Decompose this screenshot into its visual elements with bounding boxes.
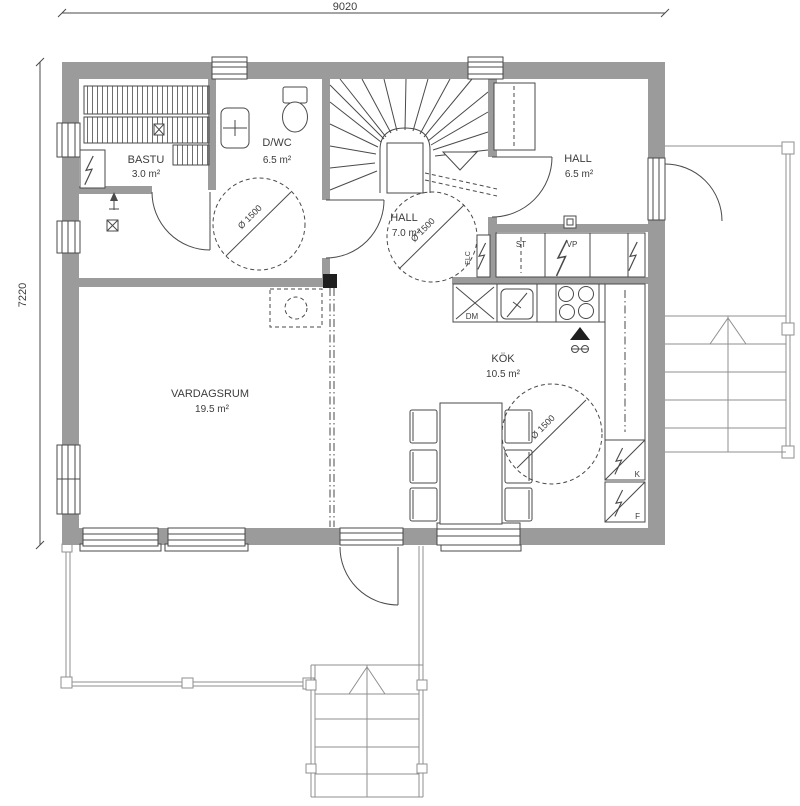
door-terrace bbox=[340, 528, 403, 605]
deck-post bbox=[182, 678, 193, 688]
ceiling-symbol bbox=[107, 220, 118, 231]
stair-arrow-down bbox=[443, 152, 477, 170]
room-label: D/WC bbox=[262, 137, 291, 149]
dining-table bbox=[440, 403, 502, 524]
wardrobe bbox=[494, 83, 535, 150]
dimension-left: 7220 bbox=[17, 58, 44, 549]
freezer-label: F bbox=[635, 512, 640, 521]
door-hall-entry bbox=[492, 157, 552, 217]
room-bastu: BASTU 3.0 m² bbox=[80, 86, 209, 188]
room-area: 10.5 m² bbox=[486, 369, 521, 380]
wall-junction-block bbox=[323, 274, 337, 288]
deck-post bbox=[417, 680, 427, 690]
door-bastu bbox=[152, 192, 210, 250]
staircase-main bbox=[330, 79, 497, 196]
deck-post bbox=[61, 677, 72, 688]
sauna-bench-lower bbox=[84, 117, 209, 143]
room-area: 19.5 m² bbox=[195, 404, 230, 415]
room-hall-entry: HALL 6.5 m² bbox=[494, 83, 594, 228]
dimension-height-label: 7220 bbox=[17, 283, 29, 307]
room-dwc: Ø 1500 D/WC 6.5 m² bbox=[213, 87, 308, 270]
stair-newel bbox=[387, 143, 423, 193]
room-label: HALL bbox=[564, 153, 592, 165]
window-bottom-livingroom-2 bbox=[165, 528, 248, 551]
sauna-heater bbox=[80, 150, 105, 188]
fridge: K bbox=[605, 440, 645, 480]
chair bbox=[410, 450, 437, 483]
drain-arrow bbox=[109, 192, 119, 210]
chair bbox=[505, 488, 532, 521]
entry-door-swing bbox=[665, 164, 722, 221]
chair bbox=[410, 488, 437, 521]
room-area: 6.5 m² bbox=[263, 155, 292, 166]
dimension-top: 9020 bbox=[58, 1, 669, 17]
window-top-right bbox=[468, 57, 503, 79]
room-label: KÖK bbox=[491, 353, 515, 365]
shower-area bbox=[107, 192, 119, 231]
window-top-left bbox=[212, 57, 247, 79]
deck-post bbox=[62, 544, 72, 552]
fireplace-outline bbox=[270, 289, 322, 327]
toilet bbox=[283, 87, 308, 132]
stairs-porch bbox=[665, 316, 786, 452]
window-left-livingroom bbox=[57, 445, 80, 514]
washbasin bbox=[221, 108, 249, 148]
stair-cut-line bbox=[425, 173, 497, 196]
ceiling-symbol bbox=[154, 124, 164, 135]
door-dwc bbox=[326, 200, 384, 258]
chair bbox=[410, 410, 437, 443]
deck-post bbox=[417, 764, 427, 773]
sauna-bench-side bbox=[173, 145, 209, 165]
door-entry bbox=[648, 158, 665, 220]
window-bottom-kitchen bbox=[437, 523, 521, 551]
cleaning-closet-label: ST bbox=[516, 240, 526, 249]
chair bbox=[505, 410, 532, 443]
fridge-label: K bbox=[635, 470, 641, 479]
window-left-bastu bbox=[57, 123, 80, 157]
room-label: HALL bbox=[390, 212, 418, 224]
turning-circle-label: Ø 1500 bbox=[529, 413, 557, 441]
room-vardagsrum: VARDAGSRUM 19.5 m² bbox=[171, 288, 334, 527]
floor-plan-page: 9020 7220 bbox=[0, 0, 800, 801]
porch-right bbox=[665, 142, 794, 458]
stairs-bottom bbox=[306, 546, 427, 797]
open-plan-divider bbox=[330, 288, 334, 527]
dishwasher-label: DM bbox=[466, 312, 479, 321]
closet-row: ST VP bbox=[496, 233, 645, 277]
room-label: VARDAGSRUM bbox=[171, 388, 249, 400]
porch-post bbox=[782, 323, 794, 335]
electrical-panel: ELC bbox=[465, 235, 490, 277]
window-bottom-livingroom-1 bbox=[80, 528, 161, 551]
vent-hood-symbol bbox=[570, 327, 590, 353]
deck-left bbox=[61, 544, 314, 689]
floor-plan-canvas: 9020 7220 bbox=[0, 0, 800, 801]
room-label: BASTU bbox=[128, 154, 165, 166]
sauna-bench-upper bbox=[84, 86, 209, 114]
porch-post bbox=[782, 142, 794, 154]
room-kok: DM K bbox=[410, 284, 645, 524]
window-left-shower bbox=[57, 221, 80, 253]
floor-symbol bbox=[564, 216, 576, 228]
room-area: 3.0 m² bbox=[132, 169, 161, 180]
turning-circle-label: Ø 1500 bbox=[236, 203, 264, 231]
room-hall-inner: Ø 1500 HALL 7.0 m² bbox=[387, 192, 477, 282]
el-central-label: ELC bbox=[465, 251, 472, 265]
freezer: F bbox=[605, 482, 645, 522]
heat-pump-label: VP bbox=[567, 240, 578, 249]
sink bbox=[501, 289, 533, 319]
deck-post bbox=[306, 680, 316, 690]
tall-cabinet bbox=[605, 284, 645, 440]
deck-post bbox=[306, 764, 316, 773]
dimension-width-label: 9020 bbox=[333, 1, 357, 13]
room-area: 7.0 m² bbox=[392, 228, 421, 239]
room-area: 6.5 m² bbox=[565, 169, 594, 180]
